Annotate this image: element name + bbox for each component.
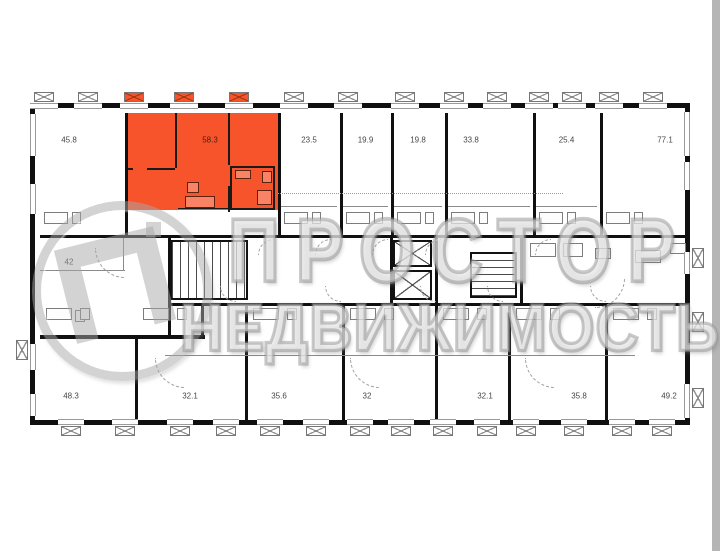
unit-divider-wall — [508, 303, 511, 420]
window-opening — [74, 103, 102, 109]
bathroom-wall — [448, 206, 530, 207]
bathroom-wall — [394, 206, 442, 207]
fixture-icon — [187, 182, 199, 193]
window-opening — [58, 419, 84, 425]
window-opening — [639, 103, 667, 109]
window-opening — [513, 419, 539, 425]
unit-divider-wall — [245, 303, 248, 420]
unit-area-label: 19.9 — [358, 136, 374, 145]
unit-area-label: 77.1 — [657, 136, 673, 145]
ac-unit-icon — [529, 92, 549, 102]
ac-unit-icon — [34, 92, 54, 102]
bathtub-icon — [253, 308, 279, 320]
unit-divider-wall — [533, 113, 536, 238]
window-opening — [347, 419, 373, 425]
toilet-icon — [374, 212, 383, 224]
bathtub-icon — [451, 212, 475, 224]
highlighted-unit-partition — [175, 113, 177, 168]
ac-unit-icon — [78, 92, 98, 102]
door-arc — [350, 358, 380, 388]
door-arc — [525, 358, 555, 388]
ac-unit-icon — [216, 426, 236, 436]
toilet-icon — [287, 308, 297, 320]
fixture-icon — [563, 243, 583, 257]
ac-unit-icon — [612, 426, 632, 436]
interior-wall — [40, 235, 690, 238]
ac-unit-icon — [564, 426, 584, 436]
ac-unit-icon — [284, 92, 304, 102]
highlighted-unit-partition — [178, 208, 228, 209]
unit-divider-wall — [278, 113, 281, 238]
bathtub-icon — [46, 308, 72, 320]
unit-area-label: 25.4 — [559, 136, 575, 145]
unit-area-label: 45.8 — [61, 136, 77, 145]
toilet-icon — [647, 308, 657, 320]
window-opening — [474, 419, 500, 425]
window-opening — [595, 103, 623, 109]
ac-unit-icon — [260, 426, 280, 436]
window-opening — [609, 419, 635, 425]
ac-unit-icon — [16, 340, 28, 360]
unit-divider-wall — [435, 303, 438, 420]
window-opening — [170, 103, 198, 109]
unit-area-label: 32 — [363, 392, 372, 401]
window-opening — [388, 419, 414, 425]
ac-unit-icon — [124, 92, 144, 102]
window-opening — [30, 114, 36, 156]
window-opening — [257, 419, 283, 425]
window-opening — [483, 103, 511, 109]
window-opening — [120, 103, 148, 109]
toilet-icon — [634, 212, 643, 224]
fixture-icon — [185, 196, 215, 208]
toilet-icon — [384, 308, 394, 320]
window-opening — [280, 103, 308, 109]
ac-unit-icon — [692, 248, 704, 268]
bathtub-icon — [284, 212, 308, 224]
window-opening — [684, 252, 690, 274]
window-opening — [684, 112, 690, 156]
ac-unit-icon — [433, 426, 453, 436]
window-opening — [440, 103, 468, 109]
unit-divider-wall — [605, 303, 608, 420]
floor-plan-image: 45.858.323.519.919.833.825.477.14248.332… — [0, 0, 720, 551]
bathroom-wall — [343, 206, 388, 207]
ac-unit-icon — [391, 426, 411, 436]
window-opening — [391, 103, 419, 109]
fixture-icon — [635, 250, 661, 263]
window-opening — [684, 384, 690, 418]
kitchen-zone-line — [278, 193, 563, 194]
door-arc — [95, 248, 125, 278]
door-arc — [155, 358, 185, 388]
unit-area-label: 48.3 — [63, 392, 79, 401]
fixture-icon — [235, 170, 251, 179]
ac-unit-icon — [115, 426, 135, 436]
toilet-icon — [479, 212, 488, 224]
toilet-icon — [80, 308, 90, 320]
interior-wall — [201, 303, 204, 337]
ac-unit-icon — [692, 312, 704, 332]
room-boundary-line — [165, 355, 635, 356]
fixture-icon — [595, 248, 611, 259]
ac-unit-icon — [170, 426, 190, 436]
bathtub-icon — [606, 212, 630, 224]
ac-unit-icon — [477, 426, 497, 436]
bathtub-icon — [346, 212, 370, 224]
unit-divider-wall — [342, 303, 345, 420]
window-opening — [30, 344, 36, 370]
interior-wall — [520, 238, 523, 303]
bathtub-icon — [397, 212, 421, 224]
window-opening — [225, 103, 253, 109]
unit-area-label: 58.3 — [202, 136, 218, 145]
ac-unit-icon — [643, 92, 663, 102]
door-arc — [487, 286, 503, 302]
ac-unit-icon — [338, 92, 358, 102]
window-opening — [430, 419, 456, 425]
unit-divider-wall — [600, 113, 603, 238]
ac-unit-icon — [562, 92, 582, 102]
window-opening — [525, 103, 553, 109]
bathtub-icon — [539, 212, 563, 224]
fixture-icon — [257, 190, 272, 205]
toilet-icon — [550, 308, 560, 320]
door-arc — [258, 239, 274, 255]
window-opening — [30, 103, 58, 109]
bathtub-icon — [613, 308, 639, 320]
window-opening — [684, 162, 690, 190]
unit-divider-wall — [135, 335, 138, 420]
highlighted-unit-partition — [147, 168, 175, 170]
ac-unit-icon — [692, 388, 704, 408]
floor-plan: 45.858.323.519.919.833.825.477.14248.332… — [30, 103, 690, 425]
bathtub-icon — [443, 308, 469, 320]
ac-unit-icon — [652, 426, 672, 436]
toilet-icon — [477, 308, 487, 320]
unit-area-label: 19.8 — [410, 136, 426, 145]
window-opening — [30, 184, 36, 214]
unit-area-label: 32.1 — [182, 392, 198, 401]
unit-area-label: 42 — [65, 258, 74, 267]
ac-unit-icon — [229, 92, 249, 102]
window-opening — [30, 394, 36, 416]
unit-divider-wall — [125, 113, 128, 238]
ac-unit-icon — [599, 92, 619, 102]
unit-divider-wall — [340, 113, 343, 238]
fixture-icon — [262, 171, 272, 183]
door-arc — [535, 239, 551, 255]
window-opening — [303, 419, 329, 425]
unit-area-label: 33.8 — [463, 136, 479, 145]
ac-unit-icon — [306, 426, 326, 436]
ac-unit-icon — [350, 426, 370, 436]
highlighted-unit-partition — [228, 113, 230, 165]
toilet-icon — [72, 212, 81, 224]
unit-divider-wall — [391, 113, 394, 238]
ac-unit-icon — [61, 426, 81, 436]
ac-unit-icon — [174, 92, 194, 102]
bathroom-wall — [536, 206, 597, 207]
unit-area-label: 23.5 — [301, 136, 317, 145]
unit-area-label: 49.2 — [661, 392, 677, 401]
right-gray-strip — [712, 0, 720, 551]
unit-area-label: 32.1 — [477, 392, 493, 401]
bathroom-wall — [281, 206, 337, 207]
door-arc — [315, 239, 331, 255]
toilet-icon — [177, 308, 187, 320]
bathtub-icon — [350, 308, 376, 320]
toilet-icon — [425, 212, 434, 224]
door-arc — [372, 239, 388, 255]
window-opening — [334, 103, 362, 109]
ac-unit-icon — [516, 426, 536, 436]
unit-area-label: 35.6 — [271, 392, 287, 401]
window-opening — [561, 419, 587, 425]
unit-area-label: 35.8 — [571, 392, 587, 401]
window-opening — [558, 103, 586, 109]
window-opening — [213, 419, 239, 425]
bathtub-icon — [44, 212, 68, 224]
bathtub-icon — [143, 308, 169, 320]
ac-unit-icon — [487, 92, 507, 102]
ac-unit-icon — [444, 92, 464, 102]
door-arc — [325, 286, 341, 302]
ac-unit-icon — [395, 92, 415, 102]
window-opening — [167, 419, 193, 425]
interior-wall — [40, 335, 205, 339]
window-opening — [649, 419, 675, 425]
staircase — [170, 240, 248, 300]
toilet-icon — [567, 212, 576, 224]
bathtub-icon — [516, 308, 542, 320]
toilet-icon — [312, 212, 321, 224]
unit-divider-wall — [445, 113, 448, 238]
window-opening — [112, 419, 138, 425]
